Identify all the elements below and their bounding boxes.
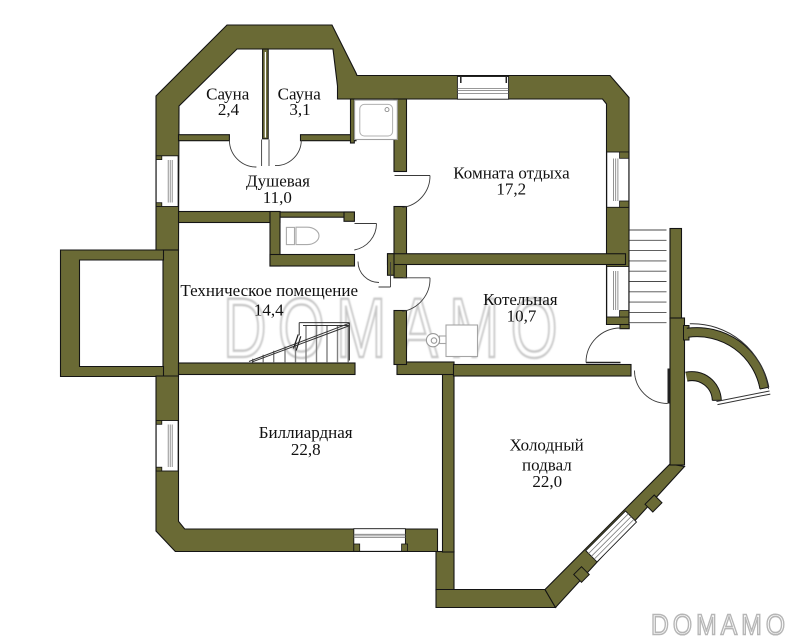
svg-text:Холодный: Холодный bbox=[509, 436, 583, 455]
svg-text:22,0: 22,0 bbox=[532, 472, 562, 491]
svg-text:17,2: 17,2 bbox=[496, 180, 526, 199]
svg-text:11,0: 11,0 bbox=[263, 188, 292, 207]
svg-text:2,4: 2,4 bbox=[218, 100, 240, 119]
svg-text:22,8: 22,8 bbox=[291, 440, 321, 459]
svg-text:3,1: 3,1 bbox=[289, 100, 310, 119]
svg-text:DOMAMO: DOMAMO bbox=[651, 609, 789, 640]
svg-text:14,4: 14,4 bbox=[254, 300, 284, 319]
svg-text:Техническое помещение: Техническое помещение bbox=[180, 281, 358, 300]
svg-text:10,7: 10,7 bbox=[507, 307, 537, 326]
